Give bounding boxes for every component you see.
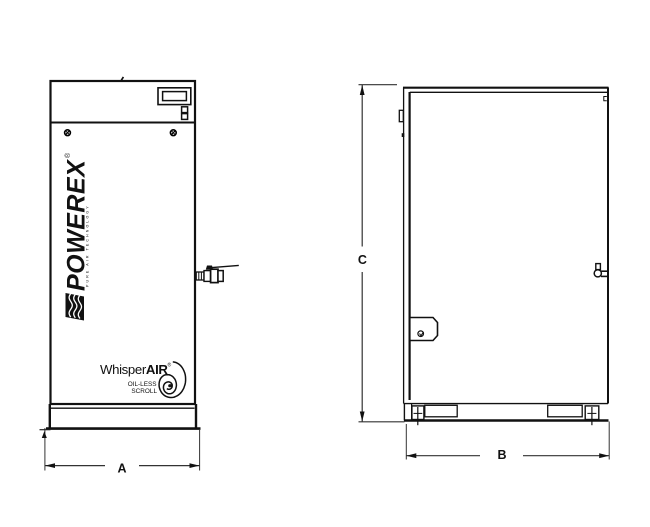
svg-text:®: ®: [64, 152, 72, 158]
svg-text:OIL-LESS: OIL-LESS: [128, 381, 157, 388]
svg-text:WhisperAIR: WhisperAIR: [100, 362, 168, 377]
svg-text:A: A: [117, 462, 126, 476]
svg-text:PURE AIR TECHNOLOGY: PURE AIR TECHNOLOGY: [85, 204, 89, 287]
svg-text:SCROLL: SCROLL: [131, 388, 157, 395]
svg-text:B: B: [497, 448, 506, 462]
svg-text:®: ®: [168, 362, 172, 369]
svg-text:C: C: [358, 253, 367, 267]
